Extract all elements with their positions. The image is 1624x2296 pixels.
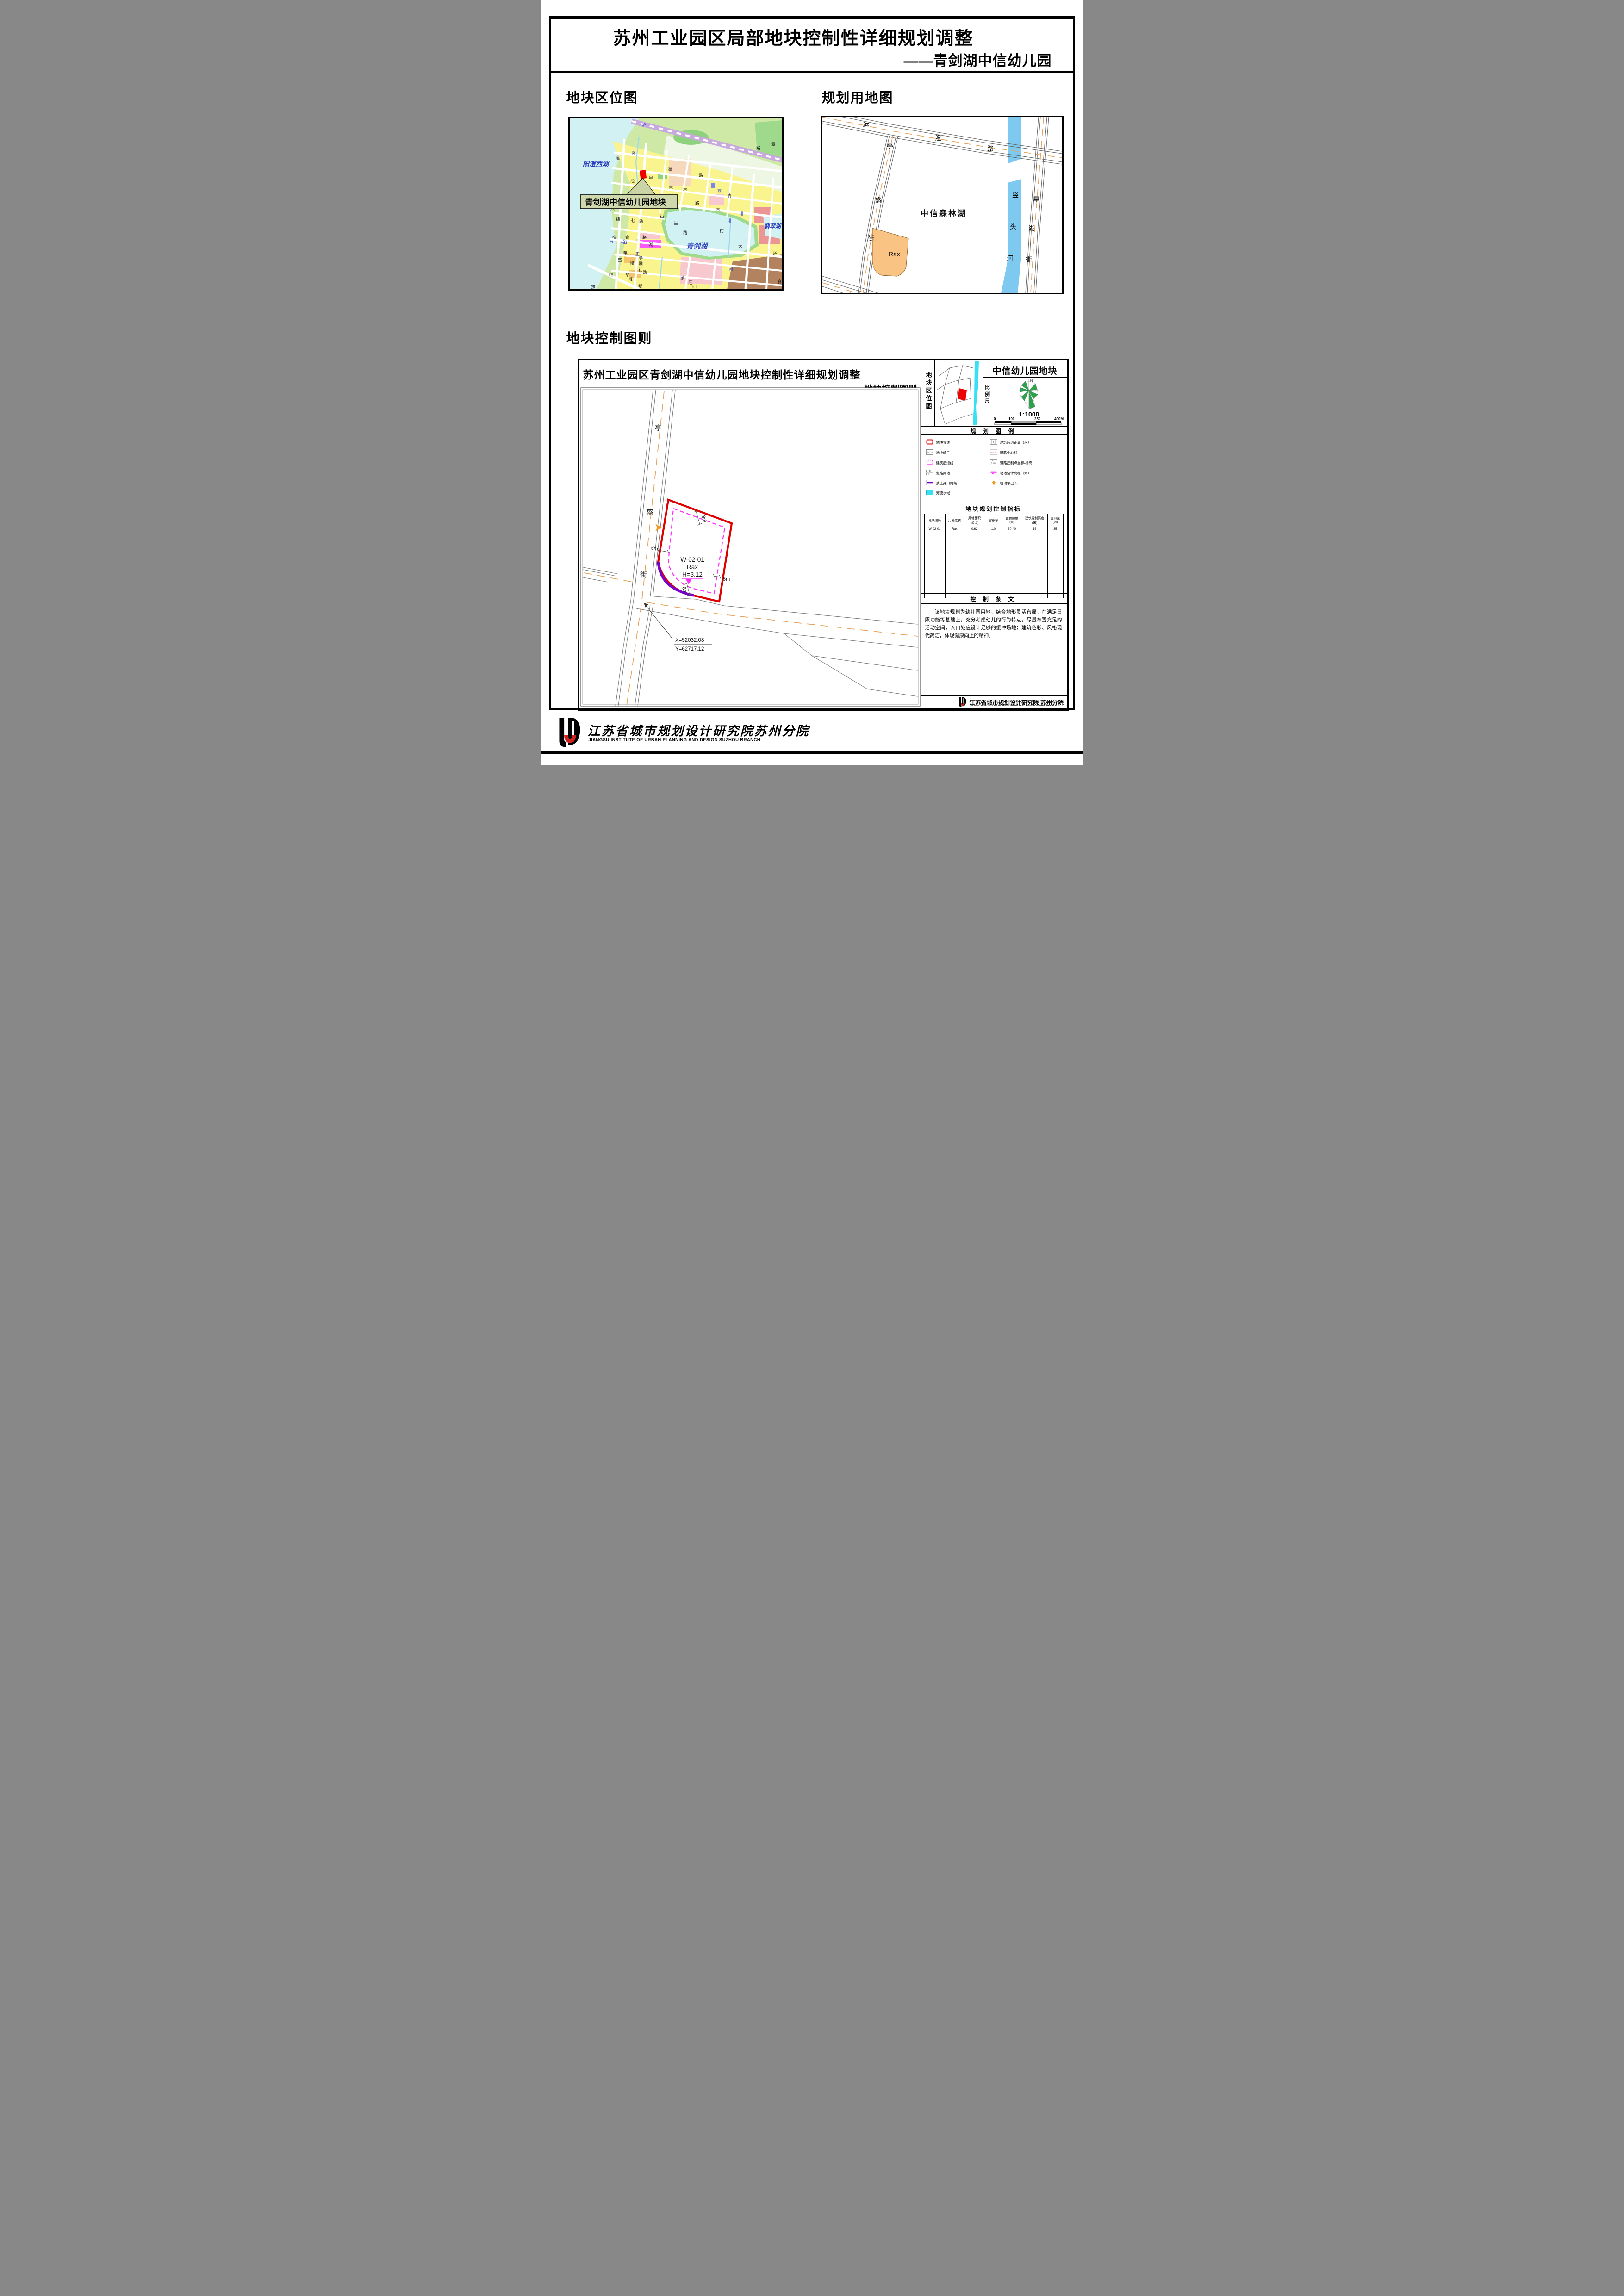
svg-text:街: 街 xyxy=(629,277,634,282)
legend-label: 建筑后退线 xyxy=(936,460,954,465)
svg-text:港: 港 xyxy=(740,211,744,216)
svg-text:盛: 盛 xyxy=(618,257,622,262)
control-chart-title: 苏州工业园区青剑湖中信幼儿园地块控制性详细规划调整 xyxy=(583,366,861,382)
svg-text:七: 七 xyxy=(631,218,635,223)
empty-row xyxy=(924,544,1063,550)
svg-text:路: 路 xyxy=(683,230,687,235)
section-heading-control: 地块控制图则 xyxy=(566,328,653,347)
legend-label: 机动车出入口 xyxy=(1000,481,1021,486)
svg-text:纬: 纬 xyxy=(616,217,620,222)
cell-density: 30-40 xyxy=(1002,526,1022,532)
th: 建筑密度(%) xyxy=(1002,514,1022,526)
legend-label: 道路中心线 xyxy=(1000,450,1018,455)
road-char-1: 亭 xyxy=(655,424,662,432)
svg-text:路: 路 xyxy=(756,145,760,150)
svg-text:亭: 亭 xyxy=(669,186,673,191)
footer-institute-en: JIANGSU INSTITUTE OF URBAN PLANNING AND … xyxy=(589,738,760,743)
jp-logo-small xyxy=(958,697,968,707)
scale-label: 比例尺 xyxy=(983,385,991,405)
legend-label: 地块编号 xyxy=(936,450,950,455)
svg-text:亭: 亭 xyxy=(887,142,893,149)
forest-lake-label: 中信森林湖 xyxy=(921,209,967,218)
main-title: 苏州工业园区局部地块控制性详细规划调整 xyxy=(541,24,1054,50)
mini-plot-marker xyxy=(958,388,967,401)
svg-text:华: 华 xyxy=(625,273,629,278)
plot-code: W-02-01 xyxy=(680,556,704,563)
th: 绿地率(%) xyxy=(1047,514,1063,526)
landuse-map-canvas: Rax 中信森林湖 运 澄 路 亭 盛 街 竖 头 河 星 湖 街 xyxy=(822,117,1062,293)
panel-location-label: 地块区位图 xyxy=(924,372,933,411)
svg-text:唯: 唯 xyxy=(609,273,613,277)
svg-text:路: 路 xyxy=(699,173,703,178)
svg-text:青: 青 xyxy=(728,193,732,198)
control-drawing: 8m 5m 5m 8m 亭 盛 街 W-02-01 Rax H=3.12 X=5… xyxy=(580,387,921,707)
lake-label-yangchengxi: 阳澄西湖 xyxy=(583,160,610,168)
svg-text:街: 街 xyxy=(660,214,664,219)
no-opening-icon xyxy=(926,480,933,485)
empty-row xyxy=(924,568,1063,574)
cell-area: 0.62 xyxy=(964,526,985,532)
legend-label: 建筑后退距离（米） xyxy=(1000,440,1032,445)
svg-text:运: 运 xyxy=(616,155,620,160)
cell-height: 16 xyxy=(1022,526,1047,532)
svg-text:经: 经 xyxy=(688,280,692,285)
svg-text:路: 路 xyxy=(643,270,647,275)
svg-text:河: 河 xyxy=(729,266,733,271)
compass-rose: N xyxy=(1011,378,1046,410)
cell-far: 1.0 xyxy=(985,526,1002,532)
location-map-canvas: 阳澄西湖 青剑湖 翡翠湖 沪 潭 路 竖 运 澄 路 头 星 亭 亭 西 谊 xyxy=(570,118,782,289)
svg-text:H=3.0: H=3.0 xyxy=(991,471,996,472)
cell-use: Rax xyxy=(945,526,964,532)
divider xyxy=(921,426,1067,427)
site-elevation-icon: H=3.0 xyxy=(990,470,997,475)
svg-text:港: 港 xyxy=(728,218,732,223)
empty-row xyxy=(924,580,1063,586)
control-point-icon xyxy=(990,459,997,465)
section-heading-location: 地块区位图 xyxy=(566,87,638,106)
svg-text:湖: 湖 xyxy=(680,276,684,281)
svg-text:街: 街 xyxy=(720,228,724,233)
landuse-map: Rax 中信森林湖 运 澄 路 亭 盛 街 竖 头 河 星 湖 街 xyxy=(821,116,1064,294)
svg-text:街: 街 xyxy=(1026,256,1032,263)
svg-text:亭: 亭 xyxy=(639,255,643,260)
svg-text:青: 青 xyxy=(716,207,720,212)
svg-text:路: 路 xyxy=(639,219,643,224)
svg-text:西: 西 xyxy=(717,189,722,193)
svg-text:星: 星 xyxy=(649,176,653,180)
svg-text:道: 道 xyxy=(773,251,777,256)
setback-distance-icon: 5 xyxy=(990,439,997,445)
location-map: 阳澄西湖 青剑湖 翡翠湖 沪 潭 路 竖 运 澄 路 头 星 亭 亭 西 谊 xyxy=(568,117,784,291)
empty-row xyxy=(924,550,1063,556)
road-land-icon xyxy=(926,470,933,475)
legend-label: 道路用地 xyxy=(936,471,950,476)
empty-row xyxy=(924,574,1063,580)
table-data-row: W-02-01 Rax 0.62 1.0 30-40 16 35 xyxy=(924,526,1063,532)
road-char-2: 盛 xyxy=(647,509,653,516)
indicators-title: 地块规划控制指标 xyxy=(921,505,1067,513)
svg-text:大: 大 xyxy=(738,243,742,248)
svg-text:沪: 沪 xyxy=(642,122,646,127)
legend-title: 规 划 图 例 xyxy=(921,427,1067,435)
svg-text:唯: 唯 xyxy=(623,251,628,255)
lake-label-qingjian: 青剑湖 xyxy=(686,242,709,250)
legend-label: 道路控制点坐标/标高 xyxy=(1000,460,1033,465)
divider xyxy=(934,360,935,426)
svg-text:路: 路 xyxy=(695,200,699,205)
lake-label-feicui: 翡翠湖 xyxy=(764,223,782,230)
plot-elevation: H=3.12 xyxy=(682,571,703,578)
plot-marker xyxy=(639,170,646,179)
svg-text:泗: 泗 xyxy=(623,240,627,245)
svg-text:路: 路 xyxy=(642,235,647,240)
panel-plot-title: 中信幼儿园地块 xyxy=(983,364,1067,377)
north-label: N xyxy=(1030,378,1033,383)
svg-text:A-01-01: A-01-01 xyxy=(927,452,933,453)
svg-text:5: 5 xyxy=(993,441,994,444)
river-icon xyxy=(926,490,933,495)
road-char-3: 街 xyxy=(640,571,647,579)
dim-right: 5m xyxy=(723,577,730,582)
svg-text:雅: 雅 xyxy=(639,261,643,266)
svg-text:湖: 湖 xyxy=(649,242,653,247)
section-heading-landuse: 规划用地图 xyxy=(822,87,894,106)
svg-text:青: 青 xyxy=(625,235,629,240)
tick-100: 100 xyxy=(1008,417,1015,421)
svg-text:星: 星 xyxy=(1033,196,1039,203)
divider xyxy=(921,593,1067,594)
coord-x: X=52032.08 xyxy=(675,638,704,643)
provisions-text: 该地块规划为幼儿园用地，结合地形灵活布局，在满足日照功能等基础上，充分考虑幼儿的… xyxy=(925,608,1062,640)
vehicle-entrance-icon xyxy=(990,480,997,485)
th: 用地面积(公顷) xyxy=(964,514,985,526)
empty-row xyxy=(924,538,1063,544)
svg-text:墅: 墅 xyxy=(638,284,642,289)
sub-title: ——青剑湖中信幼儿园 xyxy=(904,49,1052,70)
legend-label: 禁止开口路段 xyxy=(936,481,957,486)
indicators-table: 地块编码 用地性质 用地面积(公顷) 容积率 建筑密度(%) 建筑控制高度(米)… xyxy=(924,514,1064,598)
th: 容积率 xyxy=(985,514,1002,526)
footer-institute-cn: 江苏省城市规划设计研究院苏州分院 xyxy=(588,721,810,739)
svg-text:街: 街 xyxy=(868,235,874,242)
drawing-border-outer xyxy=(581,388,920,706)
empty-row xyxy=(924,562,1063,568)
plot-number-icon: A-01-01 xyxy=(926,449,933,455)
page-frame: 苏州工业园区局部地块控制性详细规划调整 ——青剑湖中信幼儿园 地块区位图 规划用… xyxy=(549,16,1075,710)
river-upper xyxy=(1008,117,1021,163)
svg-text:河: 河 xyxy=(635,239,639,244)
legend-label: 场地设计高程（米） xyxy=(1000,471,1032,476)
table-header-row: 地块编码 用地性质 用地面积(公顷) 容积率 建筑密度(%) 建筑控制高度(米)… xyxy=(924,514,1063,526)
svg-text:运: 运 xyxy=(863,121,869,128)
callout-label: 青剑湖中信幼儿园地块 xyxy=(585,198,666,207)
svg-text:河: 河 xyxy=(1007,254,1013,262)
publisher-en: JIANGSU INSTITUTE OF URBAN PLANNING AND … xyxy=(970,705,1057,707)
svg-text:四: 四 xyxy=(692,285,697,289)
rax-label: Rax xyxy=(889,250,900,258)
th: 建筑控制高度(米) xyxy=(1022,514,1047,526)
info-panel: 地块区位图 中信幼儿园地块 xyxy=(921,360,1067,709)
block-blue-1 xyxy=(711,183,715,188)
svg-text:街: 街 xyxy=(674,221,678,226)
svg-text:澄: 澄 xyxy=(935,134,941,142)
svg-text:潭: 潭 xyxy=(771,142,775,147)
mini-location-map xyxy=(936,361,982,425)
empty-row xyxy=(924,556,1063,562)
svg-text:街: 街 xyxy=(639,267,643,272)
cell-code: W-02-01 xyxy=(924,526,945,532)
tick-250: 250 xyxy=(1034,417,1041,421)
svg-text:亭: 亭 xyxy=(683,187,687,192)
title-divider xyxy=(551,71,1073,73)
legend-label: 地块界线 xyxy=(936,440,950,445)
tick-400: 400M xyxy=(1054,417,1063,421)
provisions-title: 控 制 条 文 xyxy=(921,595,1067,603)
svg-text:澄: 澄 xyxy=(668,166,672,171)
legend-label: 河流水域 xyxy=(936,490,950,496)
setback-line-icon xyxy=(926,459,933,465)
svg-text:盛: 盛 xyxy=(875,197,882,204)
jp-logo-footer xyxy=(558,718,585,749)
svg-text:湖: 湖 xyxy=(1028,224,1035,232)
svg-text:浪: 浪 xyxy=(777,279,781,284)
divider xyxy=(921,434,1067,435)
coord-y: Y=62717.12 xyxy=(675,646,704,652)
svg-text:竖: 竖 xyxy=(1012,191,1019,199)
divider xyxy=(921,603,1067,604)
divider xyxy=(921,503,1067,503)
scale-bar: 0 100 250 400M xyxy=(994,417,1064,425)
tick-0: 0 xyxy=(994,417,996,421)
empty-row xyxy=(924,532,1063,538)
svg-text:竖: 竖 xyxy=(631,151,635,155)
divider xyxy=(921,695,1067,696)
cell-green: 35 xyxy=(1047,526,1063,532)
plot-boundary-icon xyxy=(926,439,933,445)
control-chart: 苏州工业园区青剑湖中信幼儿园地块控制性详细规划调整 地块控制图则 xyxy=(578,359,1069,711)
th: 地块编码 xyxy=(924,514,945,526)
empty-row xyxy=(924,586,1063,592)
svg-text:路: 路 xyxy=(987,145,994,152)
svg-text:南: 南 xyxy=(609,239,613,244)
road-centerline-icon xyxy=(990,449,997,455)
svg-text:头: 头 xyxy=(1010,223,1016,230)
plan-document-page: 苏州工业园区局部地块控制性详细规划调整 ——青剑湖中信幼儿园 地块区位图 规划用… xyxy=(541,0,1083,765)
svg-text:经: 经 xyxy=(630,178,635,183)
bottom-edge-bar xyxy=(541,751,1083,754)
panel-divider xyxy=(921,360,921,709)
svg-text:独: 独 xyxy=(591,284,595,289)
svg-text:隆: 隆 xyxy=(630,261,634,266)
th: 用地性质 xyxy=(945,514,964,526)
plot-use: Rax xyxy=(686,564,697,571)
